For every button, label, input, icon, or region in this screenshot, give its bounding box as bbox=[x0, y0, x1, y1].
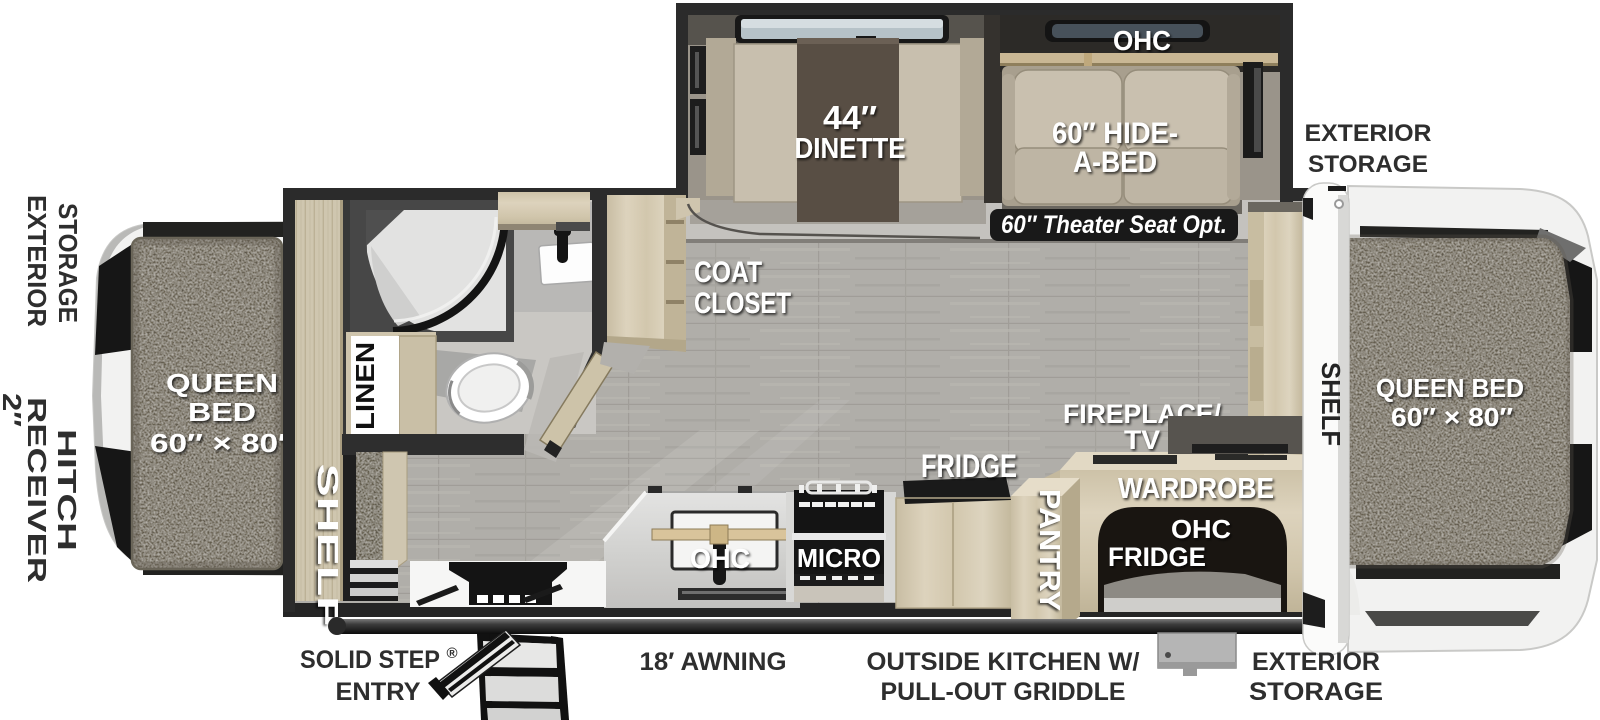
svg-text:FRIDGE: FRIDGE bbox=[921, 448, 1017, 484]
svg-text:QUEEN BED: QUEEN BED bbox=[1376, 373, 1524, 403]
svg-text:60″ × 80″: 60″ × 80″ bbox=[1391, 402, 1513, 432]
svg-text:60″ Theater Seat Opt.: 60″ Theater Seat Opt. bbox=[1001, 211, 1227, 239]
svg-text:BED: BED bbox=[188, 397, 256, 427]
svg-text:WARDROBE: WARDROBE bbox=[1118, 473, 1274, 505]
svg-text:SHELF: SHELF bbox=[311, 464, 343, 627]
svg-text:STORAGE: STORAGE bbox=[1249, 678, 1383, 706]
svg-text:COAT: COAT bbox=[694, 256, 762, 289]
svg-text:DINETTE: DINETTE bbox=[795, 133, 906, 165]
svg-text:STORAGE: STORAGE bbox=[1308, 151, 1428, 178]
svg-text:SHELF: SHELF bbox=[1316, 362, 1346, 446]
svg-text:OUTSIDE KITCHEN W/: OUTSIDE KITCHEN W/ bbox=[867, 648, 1140, 676]
svg-text:EXTERIOR: EXTERIOR bbox=[1252, 648, 1380, 676]
svg-text:OHC: OHC bbox=[690, 543, 750, 574]
svg-text:PANTRY: PANTRY bbox=[1033, 489, 1065, 611]
svg-text:PULL-OUT GRIDDLE: PULL-OUT GRIDDLE bbox=[881, 678, 1126, 706]
svg-text:QUEEN: QUEEN bbox=[166, 368, 278, 398]
svg-text:TV: TV bbox=[1124, 425, 1160, 455]
svg-text:MICRO: MICRO bbox=[797, 543, 881, 573]
svg-text:A-BED: A-BED bbox=[1073, 146, 1157, 179]
svg-text:EXTERIOR: EXTERIOR bbox=[22, 195, 52, 327]
svg-text:18′ AWNING: 18′ AWNING bbox=[640, 648, 787, 676]
svg-text:®: ® bbox=[446, 645, 457, 662]
svg-text:EXTERIOR: EXTERIOR bbox=[1305, 120, 1432, 147]
svg-text:60″ × 80″: 60″ × 80″ bbox=[150, 428, 294, 458]
svg-text:OHC: OHC bbox=[1113, 25, 1171, 56]
svg-text:FRIDGE: FRIDGE bbox=[1108, 542, 1206, 572]
svg-text:HITCH: HITCH bbox=[52, 429, 82, 551]
svg-text:RECEIVER: RECEIVER bbox=[22, 397, 52, 583]
svg-text:44″: 44″ bbox=[823, 99, 877, 136]
svg-text:CLOSET: CLOSET bbox=[694, 287, 791, 320]
svg-text:SOLID STEP: SOLID STEP bbox=[300, 646, 440, 674]
svg-text:OHC: OHC bbox=[1171, 514, 1231, 544]
svg-text:ENTRY: ENTRY bbox=[336, 678, 421, 706]
svg-text:LINEN: LINEN bbox=[350, 342, 380, 430]
svg-text:STORAGE: STORAGE bbox=[53, 203, 83, 323]
